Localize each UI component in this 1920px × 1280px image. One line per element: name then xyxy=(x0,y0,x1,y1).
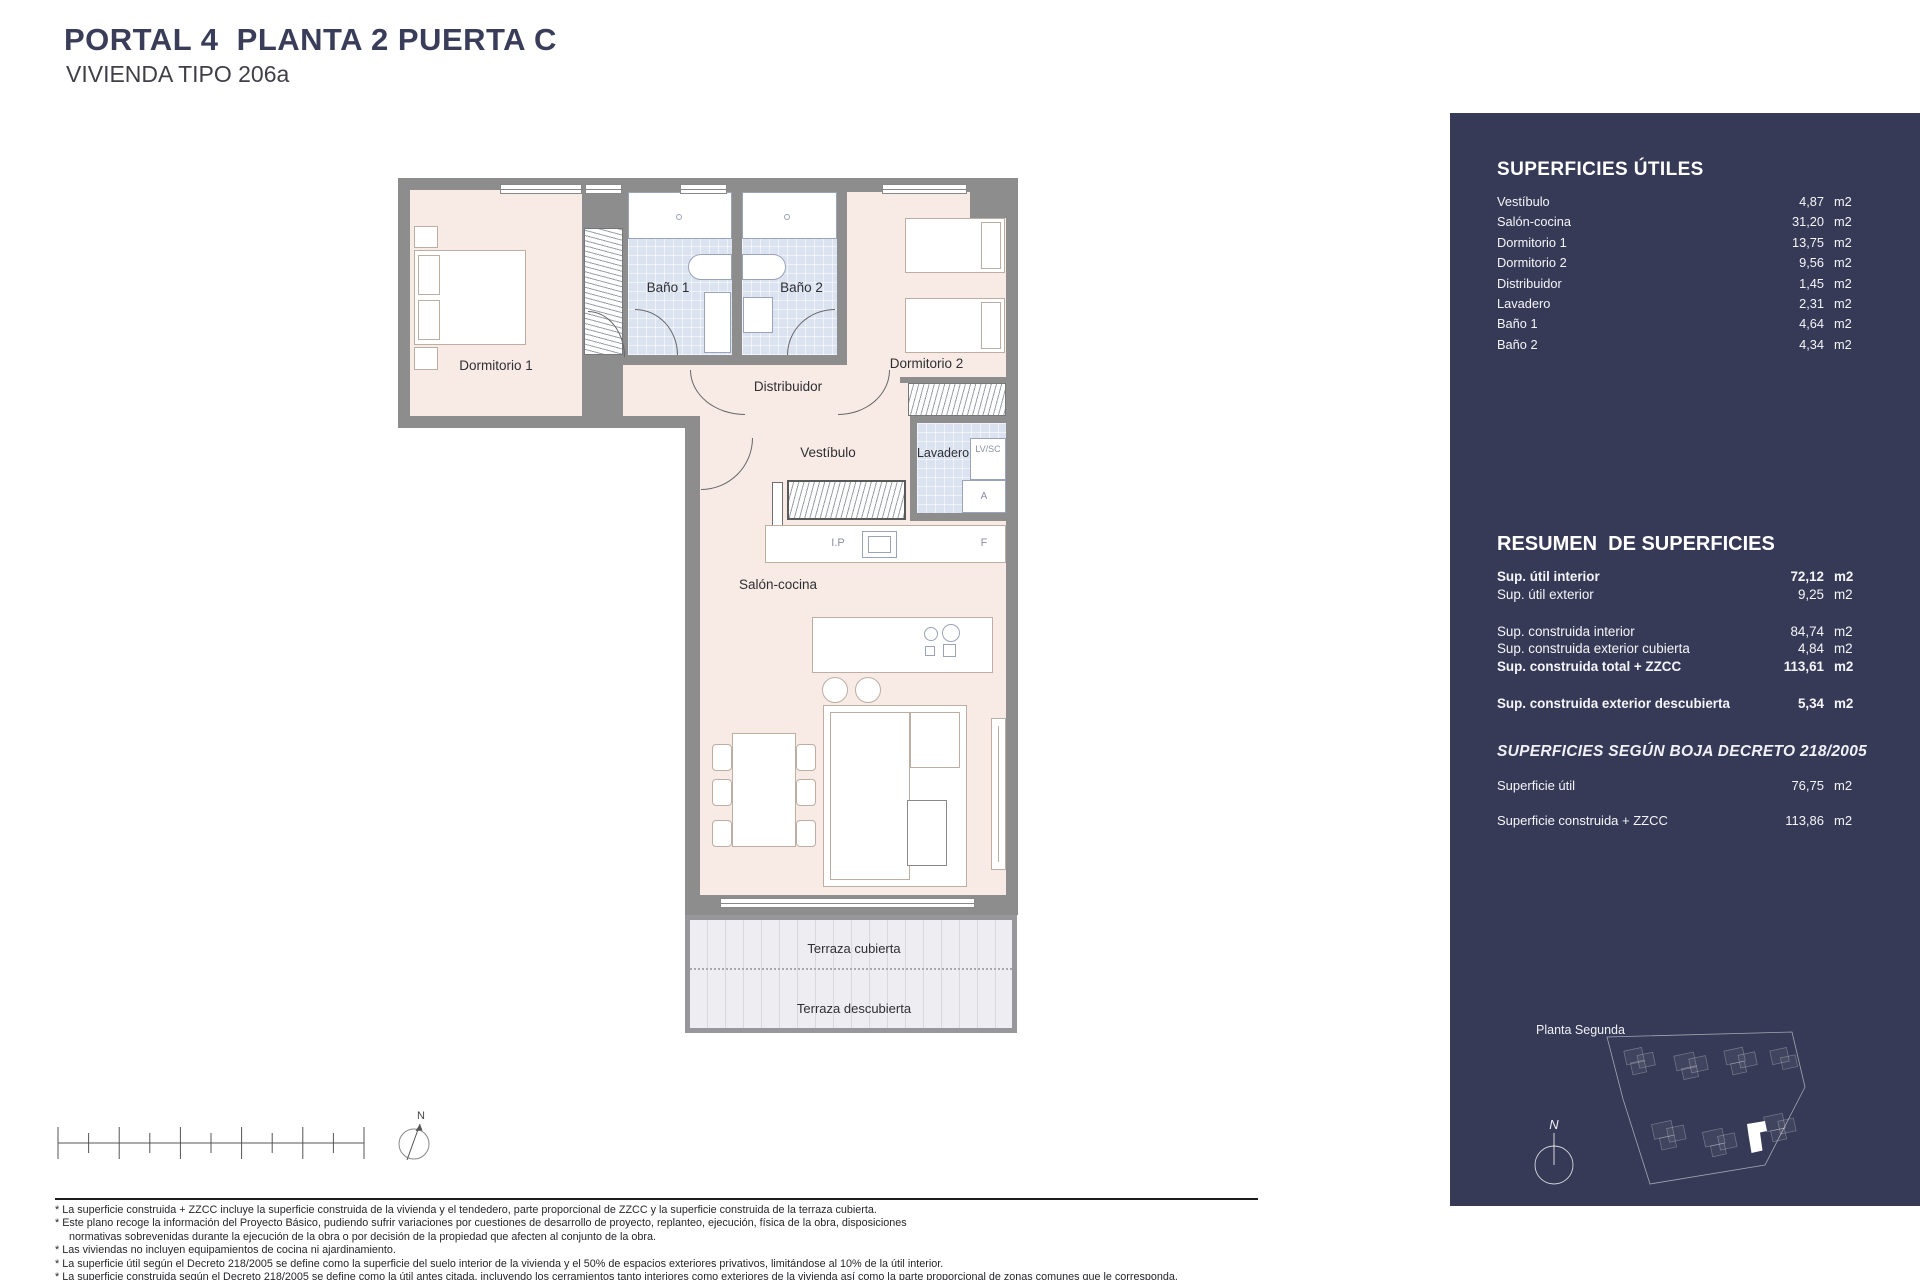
window-bano-1 xyxy=(585,184,622,194)
toilet-bano-1 xyxy=(704,292,731,353)
stool xyxy=(822,677,848,703)
pillow xyxy=(981,222,1001,269)
north-arrow: N xyxy=(394,1106,450,1170)
footer-divider xyxy=(55,1198,1258,1200)
table-row: Sup. útil exterior9,25m2 xyxy=(1497,586,1858,604)
table-row: Vestíbulo4,87m2 xyxy=(1497,192,1858,212)
label-bano-2: Baño 2 xyxy=(754,280,849,295)
table-row: Baño 14,64m2 xyxy=(1497,314,1858,334)
label-dormitorio-2: Dormitorio 2 xyxy=(847,356,1006,371)
site-north-arrow: N xyxy=(1530,1113,1590,1198)
table-row: Sup. construida exterior descubierta5,34… xyxy=(1497,695,1858,713)
bathtub-bano-1 xyxy=(688,254,732,280)
closet-dormitorio-2 xyxy=(908,383,1006,416)
pillow xyxy=(981,302,1001,349)
footnote: * La superficie útil según el Decreto 21… xyxy=(55,1258,1415,1271)
stool xyxy=(855,677,881,703)
dining-table xyxy=(732,733,796,847)
table-row: Dormitorio 113,75m2 xyxy=(1497,233,1858,253)
window-bano-2 xyxy=(680,184,727,194)
boja-table: Superficie construida + ZZCC113,86m2 xyxy=(1497,811,1858,831)
page: PORTAL 4 PLANTA 2 PUERTA C VIVIENDA TIPO… xyxy=(0,0,1920,1280)
pillow xyxy=(418,255,440,295)
terrace-divider xyxy=(690,968,1012,970)
chair xyxy=(796,820,816,847)
label-a: A xyxy=(962,491,1006,502)
label-distribuidor: Distribuidor xyxy=(708,379,868,394)
chair xyxy=(712,779,732,806)
faucet-bano-1 xyxy=(676,214,682,220)
superficies-utiles-table: Vestíbulo4,87m2 Salón-cocina31,20m2 Dorm… xyxy=(1497,192,1858,355)
window-dormitorio-1 xyxy=(500,184,582,194)
chair xyxy=(796,779,816,806)
footnote: * La superficie construida + ZZCC incluy… xyxy=(55,1204,1415,1217)
kitchen-sink-bowl xyxy=(868,536,891,553)
closet-vestibulo xyxy=(787,480,906,520)
table-row: Sup. construida total + ZZCC113,61m2 xyxy=(1497,658,1858,676)
window-dormitorio-2 xyxy=(882,184,967,194)
label-salon-cocina: Salón-cocina xyxy=(698,577,858,592)
floor-plan: Dormitorio 1 Baño 1 Baño 2 Dormitorio 2 … xyxy=(398,178,1020,1038)
north-letter: N xyxy=(1549,1117,1559,1132)
sofa-chaise xyxy=(910,712,960,768)
table-row: Sup. construida interior84,74m2 xyxy=(1497,623,1858,641)
pillow xyxy=(418,300,440,340)
wall-notch xyxy=(970,192,1006,218)
scale-bar xyxy=(52,1116,372,1168)
label-bano-1: Baño 1 xyxy=(616,280,720,295)
table-row: Superficie útil76,75m2 xyxy=(1497,776,1858,796)
chair xyxy=(712,744,732,771)
burner xyxy=(942,624,960,642)
terrace-sliding-door xyxy=(720,898,975,908)
side-table xyxy=(907,800,947,866)
label-lv-sc: LV/SC xyxy=(968,444,1008,454)
table-row: Superficie construida + ZZCC113,86m2 xyxy=(1497,811,1858,831)
table-row: Lavadero2,31m2 xyxy=(1497,294,1858,314)
nightstand xyxy=(414,226,438,248)
wall-lavadero-bottom xyxy=(917,513,1006,521)
footnote: normativas sobrevenidas durante la ejecu… xyxy=(55,1231,1415,1244)
table-row: Sup. construida exterior cubierta4,84m2 xyxy=(1497,640,1858,658)
sofa-seats xyxy=(830,712,910,880)
label-terraza-descubierta: Terraza descubierta xyxy=(774,1001,934,1016)
page-subtitle: VIVIENDA TIPO 206a xyxy=(66,61,289,88)
resumen-table: Sup. útil interior72,12m2 Sup. útil exte… xyxy=(1497,568,1858,713)
footnote: * Las viviendas no incluyen equipamiento… xyxy=(55,1244,1415,1257)
burner xyxy=(943,644,956,657)
label-ip: I.P xyxy=(818,537,858,549)
tv-unit-line xyxy=(998,726,999,862)
label-f: F xyxy=(964,537,1004,549)
label-vestibulo: Vestíbulo xyxy=(748,445,908,460)
north-letter: N xyxy=(417,1110,425,1122)
boja-table: Superficie útil76,75m2 xyxy=(1497,776,1858,796)
faucet-bano-2 xyxy=(784,214,790,220)
footnote: * La superficie construida según el Decr… xyxy=(55,1271,1415,1280)
table-row: Baño 24,34m2 xyxy=(1497,335,1858,355)
superficies-utiles-title: SUPERFICIES ÚTILES xyxy=(1497,159,1704,181)
table-row: Sup. útil interior72,12m2 xyxy=(1497,568,1858,586)
surface-panel: SUPERFICIES ÚTILES Vestíbulo4,87m2 Salón… xyxy=(1450,113,1920,1206)
resumen-title: RESUMEN DE SUPERFICIES xyxy=(1497,533,1775,556)
kitchen-island xyxy=(812,617,993,673)
table-row: Distribuidor1,45m2 xyxy=(1497,274,1858,294)
burner xyxy=(924,627,938,641)
wall-lavadero-left xyxy=(910,416,917,521)
chair xyxy=(712,820,732,847)
toilet-bano-2 xyxy=(743,297,773,333)
wall-lavadero-top xyxy=(910,416,1006,423)
label-terraza-cubierta: Terraza cubierta xyxy=(774,941,934,956)
footnote: * Este plano recoge la información del P… xyxy=(55,1217,1415,1230)
table-row: Dormitorio 29,56m2 xyxy=(1497,253,1858,273)
highlighted-unit xyxy=(1747,1121,1767,1153)
boja-title: SUPERFICIES SEGÚN BOJA DECRETO 218/2005 xyxy=(1497,743,1867,761)
footnotes: * La superficie construida + ZZCC incluy… xyxy=(55,1204,1415,1280)
chair xyxy=(796,744,816,771)
bathtub-bano-2 xyxy=(742,254,786,280)
page-title: PORTAL 4 PLANTA 2 PUERTA C xyxy=(64,22,557,58)
table-row: Salón-cocina31,20m2 xyxy=(1497,212,1858,232)
site-plan xyxy=(1580,1015,1830,1200)
burner xyxy=(925,646,935,656)
label-dormitorio-1: Dormitorio 1 xyxy=(410,358,582,373)
